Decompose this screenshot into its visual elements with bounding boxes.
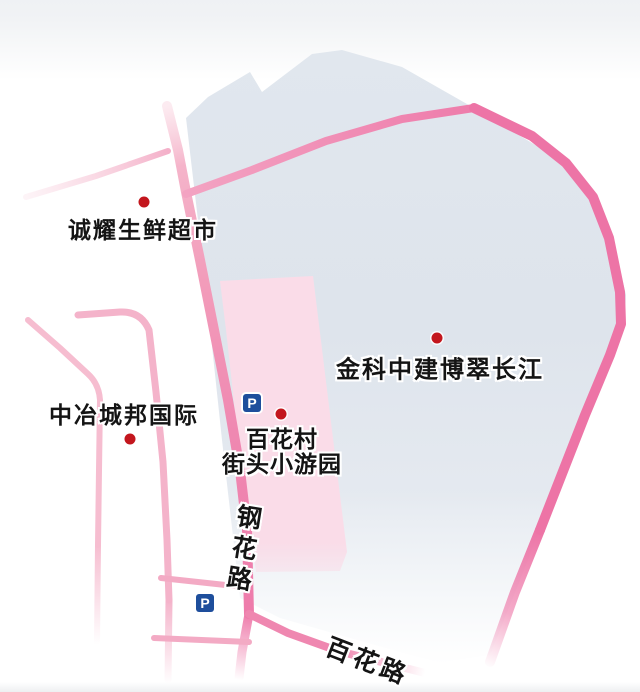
- map-base-svg: [0, 0, 640, 692]
- road-west-a: [28, 320, 100, 545]
- map-canvas[interactable]: P P 诚耀生鲜超市 金科中建博翠长江 中冶城邦国际 百花村 街头小游园 钢花路…: [0, 0, 640, 692]
- poi-dot-zhongye[interactable]: [125, 434, 136, 445]
- poi-dot-baihuacun-park[interactable]: [276, 409, 287, 420]
- road-west-b: [78, 312, 169, 600]
- road-west-a-fade: [97, 545, 98, 642]
- road-west-horizontal: [26, 151, 168, 197]
- map-bottom-band: [0, 682, 640, 692]
- poi-label-zhongye-chengbang[interactable]: 中冶城邦国际: [49, 396, 199, 430]
- parking-icon-north[interactable]: P: [243, 394, 261, 412]
- poi-label-baihuacun-park[interactable]: 百花村 街头小游园: [222, 427, 342, 477]
- poi-label-chengyao-supermarket[interactable]: 诚耀生鲜超市: [68, 211, 218, 245]
- road-ganghua-south-tail: [239, 614, 249, 678]
- parking-icon-south[interactable]: P: [196, 594, 214, 612]
- poi-label-baihuacun-line1: 百花村: [222, 427, 342, 452]
- road-connector-lower: [154, 638, 249, 642]
- poi-label-jinke-zhongjian[interactable]: 金科中建博翠长江: [336, 350, 544, 385]
- poi-dot-jinke[interactable]: [432, 333, 443, 344]
- poi-dot-chengyao[interactable]: [139, 197, 150, 208]
- poi-label-baihuacun-line2: 街头小游园: [222, 452, 342, 477]
